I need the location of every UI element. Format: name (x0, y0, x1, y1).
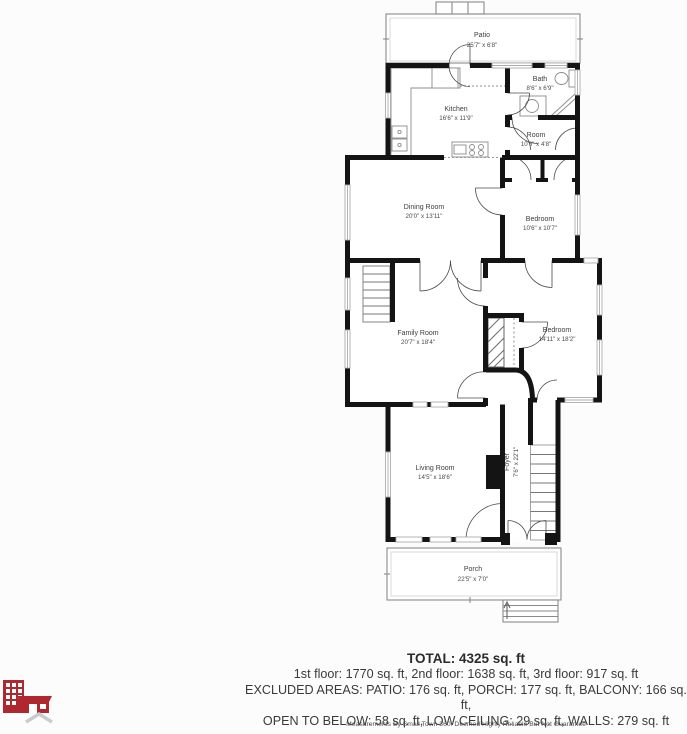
small-town-360-building-logo (0, 676, 60, 728)
room-label-living-room: Living Room (416, 465, 455, 472)
room-dims-living-room: 14'5" x 18'6" (418, 474, 452, 481)
room-dims-room: 10'6" x 4'8" (521, 141, 552, 148)
floor-areas-text: 1st floor: 1770 sq. ft, 2nd floor: 1638 … (245, 667, 687, 683)
room-label-bath: Bath (533, 76, 548, 83)
room-dims-bedroom-large: 14'11" x 18'2" (539, 336, 576, 343)
floor-plan-drawing: Patio 25'7" x 6'8" Kitchen 16'6" x 11'9"… (0, 0, 687, 734)
disclaimer-text: Measurements By Small Town 360. Deemed H… (245, 721, 687, 728)
room-label-bedroom-large: Bedroom (543, 327, 572, 334)
room-label-bedroom-small: Bedroom (526, 216, 555, 223)
room-dims-bedroom-small: 10'6" x 10'7" (523, 225, 557, 232)
room-dims-kitchen: 16'6" x 11'9" (439, 115, 472, 122)
room-dims-dining-room: 20'0" x 13'11" (406, 213, 443, 220)
excluded-areas-text-1: EXCLUDED AREAS: PATIO: 176 sq. ft, PORCH… (245, 683, 687, 714)
fireplace (486, 455, 502, 489)
room-label-room: Room (527, 132, 546, 139)
room-label-family-room: Family Room (397, 330, 438, 337)
room-dims-family-room: 20'7" x 18'4" (401, 339, 435, 346)
area-summary: TOTAL: 4325 sq. ft 1st floor: 1770 sq. f… (245, 651, 687, 729)
room-dims-patio: 25'7" x 6'8" (467, 42, 498, 49)
room-dims-foyer: 7'6" x 22'1" (513, 447, 520, 478)
room-label-patio: Patio (474, 32, 490, 39)
chevron-up-icon (26, 714, 52, 722)
room-label-porch: Porch (464, 566, 482, 573)
floor-plan-page: Patio 25'7" x 6'8" Kitchen 16'6" x 11'9"… (0, 0, 687, 734)
total-area-text: TOTAL: 4325 sq. ft (245, 651, 687, 667)
room-dims-bath: 8'6" x 6'9" (526, 85, 553, 92)
room-label-foyer: Foyer (504, 452, 511, 471)
room-label-kitchen: Kitchen (444, 106, 467, 113)
room-dims-porch: 22'5" x 7'0" (458, 576, 489, 583)
room-label-dining-room: Dining Room (404, 204, 445, 211)
